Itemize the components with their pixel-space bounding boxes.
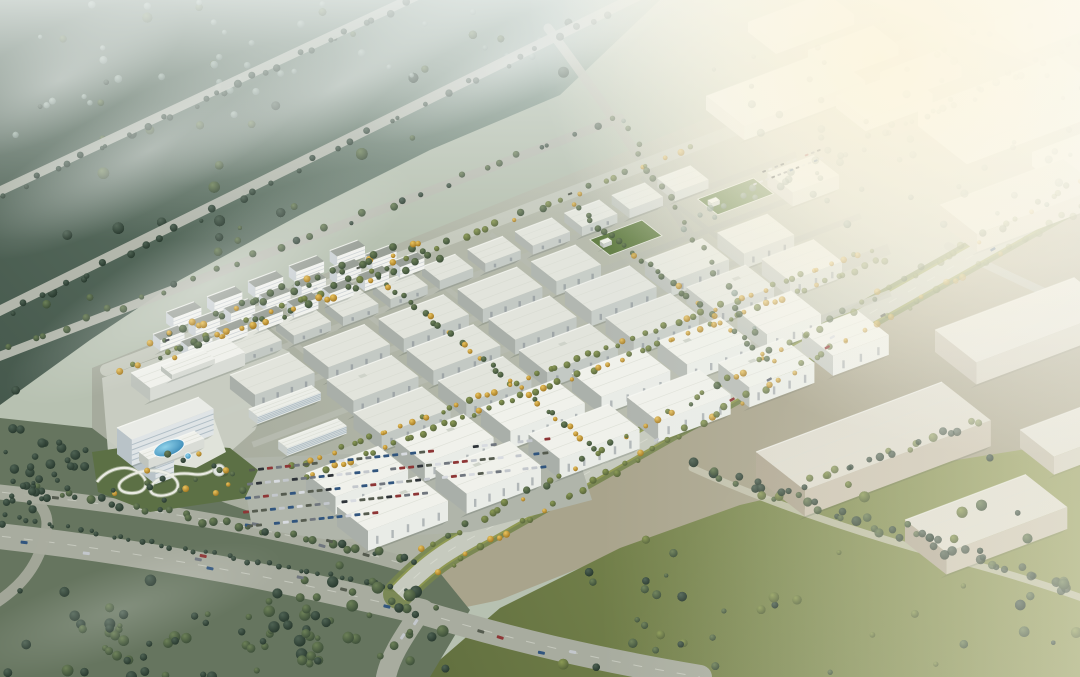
mist-overlays [0,0,1080,677]
aerial-industrial-park-render [0,0,1080,677]
rendered-scene [0,0,1080,677]
sun-glare [0,0,1080,677]
